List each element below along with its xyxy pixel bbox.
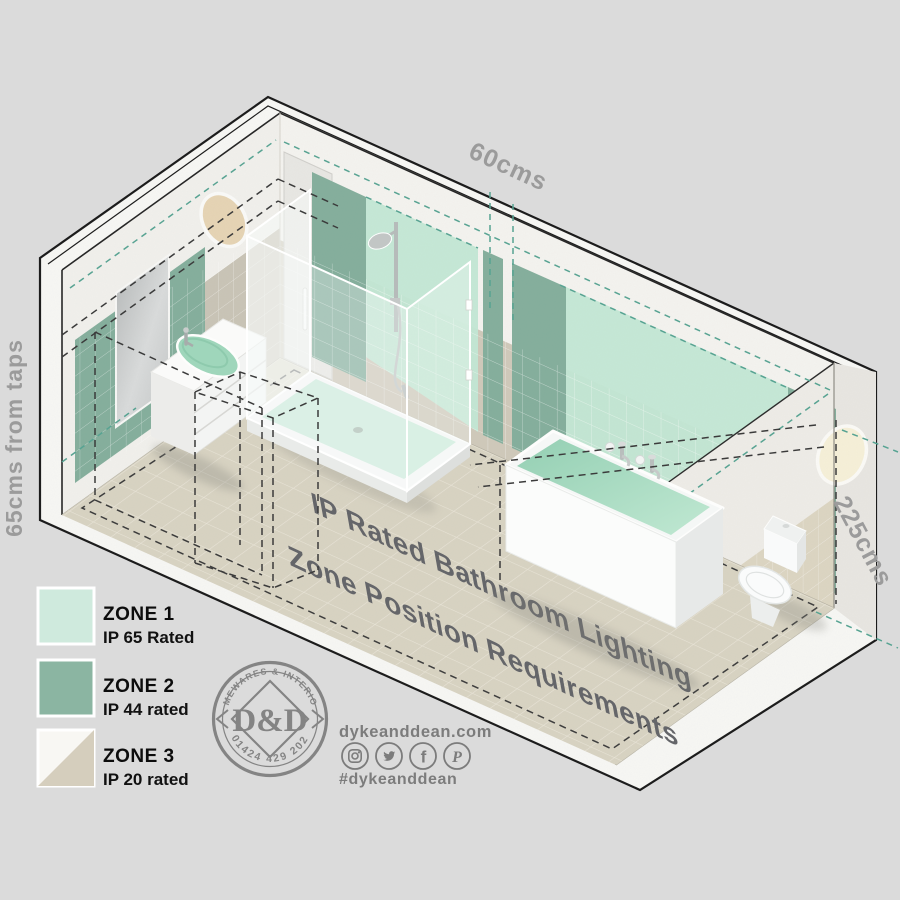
infographic-poster: IP Rated Bathroom Lighting Zone Position…	[0, 0, 900, 900]
bathroom-zone-diagram: IP Rated Bathroom Lighting Zone Position…	[0, 0, 900, 900]
facebook-icon: f	[410, 743, 436, 769]
label-shower-zone-width: 60cms	[465, 137, 552, 197]
legend-row-zone2: ZONE 2 IP 44 rated	[38, 660, 189, 719]
hashtag-text: #dykeanddean	[339, 771, 457, 788]
instagram-icon	[342, 743, 368, 769]
twitter-icon	[376, 743, 402, 769]
legend: ZONE 1 IP 65 Rated ZONE 2 IP 44 rated ZO…	[38, 588, 194, 789]
legend-zone3-rating: IP 20 rated	[103, 770, 189, 789]
legend-zone2-rating: IP 44 rated	[103, 700, 189, 719]
legend-zone1-label: ZONE 1	[103, 604, 175, 625]
pinterest-icon: P	[444, 743, 470, 769]
legend-swatch-zone2	[38, 660, 94, 716]
legend-row-zone3: ZONE 3 IP 20 rated	[38, 730, 189, 789]
legend-row-zone1: ZONE 1 IP 65 Rated	[38, 588, 194, 647]
legend-zone2-label: ZONE 2	[103, 676, 175, 697]
contact-block: dykeanddean.com f P #dykeanddean	[339, 723, 492, 788]
logo-monogram: D&D	[232, 703, 307, 739]
website-text: dykeanddean.com	[339, 723, 492, 741]
legend-zone3-label: ZONE 3	[103, 746, 175, 767]
legend-swatch-zone1	[38, 588, 94, 644]
svg-text:f: f	[421, 748, 427, 767]
label-basin-zone-distance: 65cms from taps	[1, 339, 27, 537]
legend-zone1-rating: IP 65 Rated	[103, 628, 194, 647]
svg-text:P: P	[451, 749, 462, 766]
